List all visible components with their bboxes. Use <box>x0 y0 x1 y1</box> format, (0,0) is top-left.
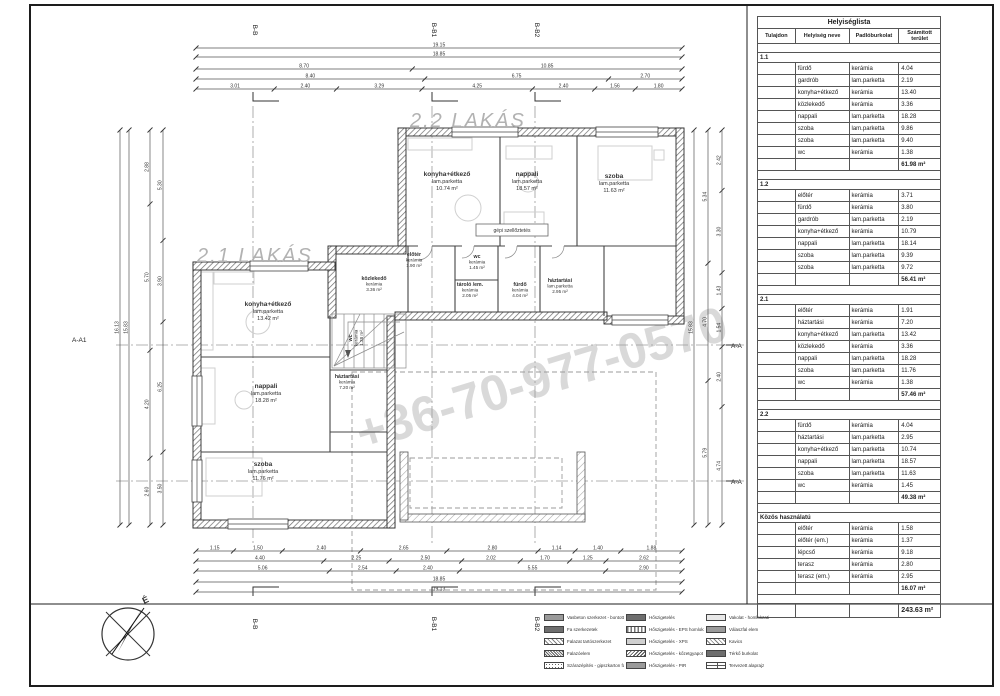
table-cell: gardrób <box>795 214 849 226</box>
room-floor-finish: kerámia <box>366 282 383 287</box>
table-row: 16.07 m² <box>758 583 941 595</box>
dimension-value: 5.34 <box>703 192 709 202</box>
table-cell: kerámia <box>849 535 899 547</box>
table-row: fürdőkerámia3.80 <box>758 202 941 214</box>
table-row: wckerámia1.45 <box>758 480 941 492</box>
room-area: 4.04 m² <box>512 293 528 298</box>
table-row: konyha+étkezőkerámia13.40 <box>758 87 941 99</box>
table-cell <box>758 226 796 238</box>
legend-item: Falazóelem <box>544 650 624 657</box>
plan-swatch-icon <box>706 662 726 669</box>
table-cell: előtér <box>795 523 849 535</box>
dimension-value: 4.25 <box>472 84 482 90</box>
table-cell: 2.1 <box>758 295 941 305</box>
table-cell: háztartási <box>795 432 849 444</box>
table-row: 1.1 <box>758 53 941 63</box>
section-marker-bb2-bottom: B-B2 <box>533 617 540 632</box>
table-row <box>758 504 941 513</box>
room-floor-finish: lam.parketta <box>253 309 284 315</box>
dimension-value: 2.25 <box>352 556 362 562</box>
table-cell: nappali <box>795 456 849 468</box>
room-area: 1.38 m² <box>359 330 364 346</box>
room-name: konyha+étkező <box>424 171 471 178</box>
dimension-value: 2.40 <box>300 84 310 90</box>
table-cell: kerámia <box>849 99 899 111</box>
table-row: 57.46 m² <box>758 389 941 401</box>
room-floor-finish: lam.parketta <box>547 284 573 289</box>
table-row: 1.2 <box>758 180 941 190</box>
table-cell: kerámia <box>849 305 899 317</box>
room-name: nappali <box>516 171 539 178</box>
table-title: Helyiséglista <box>758 17 941 29</box>
svg-text:gépi szellőztetés: gépi szellőztetés <box>494 228 531 234</box>
table-cell: kerámia <box>849 571 899 583</box>
room-label: háztartásilam.parketta2.95 m² <box>547 278 573 294</box>
dimension-value: 5.30 <box>158 180 164 190</box>
table-cell: Közös használatú <box>758 513 941 523</box>
dimension-value: 3.50 <box>158 483 164 493</box>
table-cell: konyha+étkező <box>795 444 849 456</box>
table-cell <box>795 389 849 401</box>
table-cell: 9.18 <box>899 547 941 559</box>
table-row: 49.38 m² <box>758 492 941 504</box>
dimension-value: 8.40 <box>305 74 315 80</box>
table-cell: lam.parketta <box>849 432 899 444</box>
table-cell <box>758 286 941 295</box>
table-cell: 3.36 <box>899 341 941 353</box>
legend-label: Kavics <box>729 639 742 644</box>
room-area: 13.42 m² <box>257 316 279 322</box>
table-row <box>758 44 941 53</box>
table-cell <box>758 365 796 377</box>
table-cell: 49.38 m² <box>899 492 941 504</box>
table-cell: kerámia <box>849 547 899 559</box>
dimension-value: 6.75 <box>512 74 522 80</box>
dimension-value: 2.62 <box>639 556 649 562</box>
table-cell: szoba <box>795 262 849 274</box>
table-cell: lam.parketta <box>849 214 899 226</box>
legend-label: Hőszigetelés - EPS homlokzati <box>649 627 704 632</box>
table-cell <box>758 480 796 492</box>
table-row: előtérkerámia1.91 <box>758 305 941 317</box>
table-cell: 9.39 <box>899 250 941 262</box>
room-floor-finish: lam.parketta <box>599 181 630 187</box>
table-cell: lam.parketta <box>849 365 899 377</box>
table-row: közlekedőkerámia3.36 <box>758 99 941 111</box>
table-cell: kerámia <box>849 63 899 75</box>
table-cell: 18.14 <box>899 238 941 250</box>
legend-label: Hőszigetelés <box>649 615 675 620</box>
table-cell: 18.28 <box>899 353 941 365</box>
table-cell <box>758 377 796 389</box>
column-header-room: Helyiség neve <box>795 29 849 44</box>
dimension-value: 2.60 <box>145 487 151 497</box>
table-cell <box>758 504 941 513</box>
room-floor-finish: lam.parketta <box>432 179 463 185</box>
table-cell: lam.parketta <box>849 262 899 274</box>
zigzag-swatch-icon <box>626 650 646 657</box>
table-cell <box>795 159 849 171</box>
room-area: 18.28 m² <box>255 398 277 404</box>
solid-mid-swatch-icon <box>544 614 564 621</box>
table-row: szobalam.parketta11.63 <box>758 468 941 480</box>
dimension-value: 1.54 <box>717 323 723 333</box>
room-label: nappalilam.parketta18.28 m² <box>251 383 282 404</box>
table-cell <box>758 171 941 180</box>
table-cell: 1.1 <box>758 53 941 63</box>
table-cell <box>758 190 796 202</box>
legend-item: Hőszigetelés - PIR <box>626 662 704 669</box>
table-cell: lam.parketta <box>849 111 899 123</box>
table-cell <box>758 547 796 559</box>
table-cell <box>758 492 796 504</box>
table-row: előtérkerámia3.71 <box>758 190 941 202</box>
table-cell: szoba <box>795 365 849 377</box>
section-marker-aa1-left: A-A1 <box>72 337 87 344</box>
solid-mid-swatch-icon <box>626 662 646 669</box>
table-cell <box>758 75 796 87</box>
table-cell: 4.04 <box>899 420 941 432</box>
dimension-value: 2.54 <box>358 566 368 572</box>
table-row: szobalam.parketta9.86 <box>758 123 941 135</box>
dimension-value: 10.85 <box>541 64 554 70</box>
table-row: konyha+étkezőlam.parketta13.42 <box>758 329 941 341</box>
table-cell: kerámia <box>849 420 899 432</box>
room-floor-finish: kerámia <box>462 288 479 293</box>
table-cell: lam.parketta <box>849 250 899 262</box>
solid-dark-swatch-icon <box>626 614 646 621</box>
dimension-value: 3.90 <box>158 276 164 286</box>
table-cell: 13.40 <box>899 87 941 99</box>
room-area: 10.74 m² <box>436 186 458 192</box>
legend-label: Hőszigetelés - XPS <box>649 639 688 644</box>
table-cell <box>758 262 796 274</box>
room-area: 7.20 m² <box>339 385 355 390</box>
table-cell <box>849 389 899 401</box>
dimension-value: 1.43 <box>717 285 723 295</box>
table-row: konyha+étkezőkerámia10.79 <box>758 226 941 238</box>
room-floor-finish: kerámia <box>354 329 359 346</box>
room-area: 11.63 m² <box>603 188 624 194</box>
legend-label: Falazat tartószerkezet <box>567 639 611 644</box>
table-cell <box>758 559 796 571</box>
legend-item: Vakolat - homlokzati <box>706 614 780 621</box>
dimension-value: 8.70 <box>299 64 309 70</box>
table-cell: wc <box>795 147 849 159</box>
table-cell: 2.19 <box>899 214 941 226</box>
room-label: közlekedőkerámia3.36 m² <box>361 276 386 292</box>
legend-label: Hőszigetelés - PIR <box>649 663 686 668</box>
table-cell: előtér <box>795 305 849 317</box>
table-row: wckerámia1.38 <box>758 377 941 389</box>
table-row <box>758 171 941 180</box>
table-cell <box>849 604 899 618</box>
table-row: gardróblam.parketta2.19 <box>758 214 941 226</box>
table-cell: 1.2 <box>758 180 941 190</box>
room-floor-finish: kerámia <box>469 260 486 265</box>
table-cell: 2.95 <box>899 571 941 583</box>
table-row <box>758 286 941 295</box>
table-cell <box>758 595 941 604</box>
table-cell <box>758 250 796 262</box>
table-cell: kerámia <box>849 480 899 492</box>
table-cell: közlekedő <box>795 341 849 353</box>
dimension-value: 3.30 <box>717 226 723 236</box>
dimension-value: 4.70 <box>703 317 709 327</box>
apartment-22-title: 2.2 LAKÁS <box>409 109 526 132</box>
table-cell <box>758 444 796 456</box>
dimension-value: 2.70 <box>640 74 650 80</box>
room-floor-finish: lam.parketta <box>512 179 543 185</box>
table-cell: 3.36 <box>899 99 941 111</box>
table-cell <box>758 341 796 353</box>
table-cell: kerámia <box>849 523 899 535</box>
dimension-value: 2.80 <box>488 546 498 552</box>
column-header-owner: Tulajdon <box>758 29 796 44</box>
table-cell <box>795 604 849 618</box>
table-cell <box>758 274 796 286</box>
dimension-value: 2.90 <box>639 566 649 572</box>
table-cell: fürdő <box>795 420 849 432</box>
table-cell: 4.04 <box>899 63 941 75</box>
table-row: gardróblam.parketta2.19 <box>758 75 941 87</box>
table-row: előtér (em.)kerámia1.37 <box>758 535 941 547</box>
table-cell <box>849 583 899 595</box>
dimension-value: 2.40 <box>717 372 723 382</box>
table-row: 61.98 m² <box>758 159 941 171</box>
table-cell: 9.86 <box>899 123 941 135</box>
dimension-value: 2.40 <box>559 84 569 90</box>
legend-item: Térkő burkolat <box>706 650 780 657</box>
section-marker-bb1-top: B-B1 <box>430 23 437 38</box>
table-cell: 9.40 <box>899 135 941 147</box>
dimension-value: 4.74 <box>717 461 723 471</box>
table-cell <box>849 159 899 171</box>
table-cell: háztartási <box>795 317 849 329</box>
section-marker-bb-bottom: B-B <box>251 619 258 630</box>
table-cell <box>795 583 849 595</box>
dimension-value: 3.01 <box>230 84 240 90</box>
dimension-value: 2.40 <box>317 546 327 552</box>
table-cell: 11.76 <box>899 365 941 377</box>
room-floor-finish: kerámia <box>339 380 356 385</box>
legend-item: Tervezett alaprajz <box>706 662 780 669</box>
table-cell: lam.parketta <box>849 444 899 456</box>
dimension-value: 1.80 <box>654 84 664 90</box>
table-row: Közös használatú <box>758 513 941 523</box>
table-cell: 10.79 <box>899 226 941 238</box>
table-cell <box>758 571 796 583</box>
room-label: előtérkerámia1.90 m² <box>406 252 423 268</box>
table-cell <box>758 329 796 341</box>
room-label: háztartásikerámia7.20 m² <box>335 374 360 390</box>
table-cell: gardrób <box>795 75 849 87</box>
table-cell <box>758 214 796 226</box>
table-cell <box>758 456 796 468</box>
table-cell: 2.19 <box>899 75 941 87</box>
table-cell: szoba <box>795 468 849 480</box>
table-cell: konyha+étkező <box>795 226 849 238</box>
legend-label: Vasbeton szerkezet - bontott <box>567 615 624 620</box>
table-cell: kerámia <box>849 341 899 353</box>
table-row: nappalilam.parketta18.28 <box>758 111 941 123</box>
table-row: szobalam.parketta9.40 <box>758 135 941 147</box>
table-cell: 11.63 <box>899 468 941 480</box>
room-floor-finish: lam.parketta <box>251 391 282 397</box>
dimension-value: 6.25 <box>158 382 164 392</box>
legend-item: Fa szerkezetek <box>544 626 624 633</box>
table-cell: 1.58 <box>899 523 941 535</box>
table-cell <box>758 202 796 214</box>
section-marker-aa-right-2: A-A <box>731 479 743 486</box>
solid-dark-swatch-icon <box>706 650 726 657</box>
table-cell: 1.91 <box>899 305 941 317</box>
table-cell: wc <box>795 377 849 389</box>
table-cell: szoba <box>795 250 849 262</box>
table-row: konyha+étkezőlam.parketta10.74 <box>758 444 941 456</box>
table-row: szobalam.parketta11.76 <box>758 365 941 377</box>
room-floor-finish: lam.parketta <box>248 469 279 475</box>
table-cell <box>849 274 899 286</box>
table-cell: 7.20 <box>899 317 941 329</box>
table-row: teraszkerámia2.80 <box>758 559 941 571</box>
dimension-value: 18.85 <box>433 577 446 583</box>
table-row: háztartásilam.parketta2.95 <box>758 432 941 444</box>
room-label: fürdőkerámia4.04 m² <box>512 282 529 298</box>
table-cell <box>758 99 796 111</box>
table-cell: 1.38 <box>899 377 941 389</box>
legend-label: Térkő burkolat <box>729 651 758 656</box>
ventilation-note: gépi szellőztetés <box>476 224 548 236</box>
dimension-value: 3.29 <box>374 84 384 90</box>
legend: Vasbeton szerkezet - bontottHőszigetelés… <box>544 611 776 679</box>
hatch-light-swatch-icon <box>706 638 726 645</box>
apartment-21-title: 2.1 LAKÁS <box>196 244 313 267</box>
table-cell: szoba <box>795 123 849 135</box>
solid-mid-swatch-icon <box>706 626 726 633</box>
room-area: 1.90 m² <box>406 263 422 268</box>
room-name: nappali <box>255 383 278 390</box>
hatch-light-swatch-icon <box>544 638 564 645</box>
room-label: tároló /em.kerámia2.05 m² <box>457 282 484 298</box>
table-cell: 18.57 <box>899 456 941 468</box>
table-row: 56.41 m² <box>758 274 941 286</box>
dimension-value: 1.50 <box>253 546 263 552</box>
dimension-value: 2.40 <box>423 566 433 572</box>
table-cell <box>758 63 796 75</box>
room-label: wckerámia1.45 m² <box>469 254 486 270</box>
table-cell: kerámia <box>849 147 899 159</box>
dimension-value: 15.83 <box>689 321 695 334</box>
table-cell: lam.parketta <box>849 123 899 135</box>
dimension-value: 4.40 <box>255 556 265 562</box>
room-label: wckerámia1.38 m² <box>348 329 364 346</box>
table-cell: 13.42 <box>899 329 941 341</box>
legend-label: Fa szerkezetek <box>567 627 598 632</box>
table-cell: 243.63 m² <box>899 604 941 618</box>
dimension-value: 1.70 <box>540 556 550 562</box>
table-cell: lam.parketta <box>849 468 899 480</box>
dimension-value: 19.13 <box>433 587 446 593</box>
table-cell <box>795 274 849 286</box>
table-cell <box>758 535 796 547</box>
dimension-value: 5.70 <box>145 272 151 282</box>
table-row: wckerámia1.38 <box>758 147 941 159</box>
table-row: 2.1 <box>758 295 941 305</box>
table-cell: lépcső <box>795 547 849 559</box>
dimension-value: 2.42 <box>717 155 723 165</box>
dimension-value: 1.40 <box>593 546 603 552</box>
table-cell <box>758 44 941 53</box>
table-cell: kerámia <box>849 317 899 329</box>
dimension-value: 1.25 <box>583 556 593 562</box>
table-cell <box>758 111 796 123</box>
legend-item: Hőszigetelés - EPS homlokzati <box>626 626 704 633</box>
room-floor-finish: kerámia <box>512 288 529 293</box>
table-row <box>758 401 941 410</box>
table-cell: kerámia <box>849 377 899 389</box>
dimension-value: 5.79 <box>703 448 709 458</box>
legend-item: Szárazépítés - gipszkarton fal - bontott <box>544 662 624 669</box>
dimension-value: 5.06 <box>258 566 268 572</box>
table-cell: lam.parketta <box>849 135 899 147</box>
room-label: nappalilam.parketta18.57 m² <box>512 171 543 192</box>
table-cell <box>758 238 796 250</box>
table-cell: kerámia <box>849 559 899 571</box>
table-row: lépcsőkerámia9.18 <box>758 547 941 559</box>
dimension-value: 16.13 <box>115 321 121 334</box>
table-cell: 18.28 <box>899 111 941 123</box>
table-cell: konyha+étkező <box>795 87 849 99</box>
dimension-value: 2.50 <box>420 556 430 562</box>
table-cell: nappali <box>795 353 849 365</box>
table-cell: terasz (em.) <box>795 571 849 583</box>
column-header-floor: Padlóburkolat <box>849 29 899 44</box>
table-cell: konyha+étkező <box>795 329 849 341</box>
table-cell: szoba <box>795 135 849 147</box>
table-row: közlekedőkerámia3.36 <box>758 341 941 353</box>
table-cell <box>758 401 941 410</box>
legend-label: Vakolat - homlokzati <box>729 615 769 620</box>
dimension-value: 2.02 <box>486 556 496 562</box>
table-row: nappalilam.parketta18.14 <box>758 238 941 250</box>
table-row: szobalam.parketta9.39 <box>758 250 941 262</box>
drawing-sheet: +36-70-977-0570 <box>0 0 1000 691</box>
table-cell <box>758 468 796 480</box>
legend-item: Hőszigetelés <box>626 614 704 621</box>
table-cell: előtér <box>795 190 849 202</box>
table-row: szobalam.parketta9.72 <box>758 262 941 274</box>
column-header-area: Számított terület <box>899 29 941 44</box>
table-cell <box>758 420 796 432</box>
legend-label: Szárazépítés - gipszkarton fal - bontott <box>567 663 624 668</box>
waves-swatch-icon <box>626 626 646 633</box>
table-cell: kerámia <box>849 202 899 214</box>
table-cell: 1.45 <box>899 480 941 492</box>
room-area: 11.76 m² <box>252 476 273 482</box>
table-cell: terasz <box>795 559 849 571</box>
dots-swatch-icon <box>544 662 564 669</box>
dimension-value: 1.14 <box>552 546 562 552</box>
solid-light-swatch-icon <box>706 614 726 621</box>
table-cell: fürdő <box>795 202 849 214</box>
table-row: háztartásikerámia7.20 <box>758 317 941 329</box>
table-cell: kerámia <box>849 190 899 202</box>
section-marker-bb-top: B-B <box>251 25 258 36</box>
section-marker-bb1-bottom: B-B1 <box>430 617 437 632</box>
room-area: 18.57 m² <box>516 186 538 192</box>
legend-item: Kavics <box>706 638 780 645</box>
